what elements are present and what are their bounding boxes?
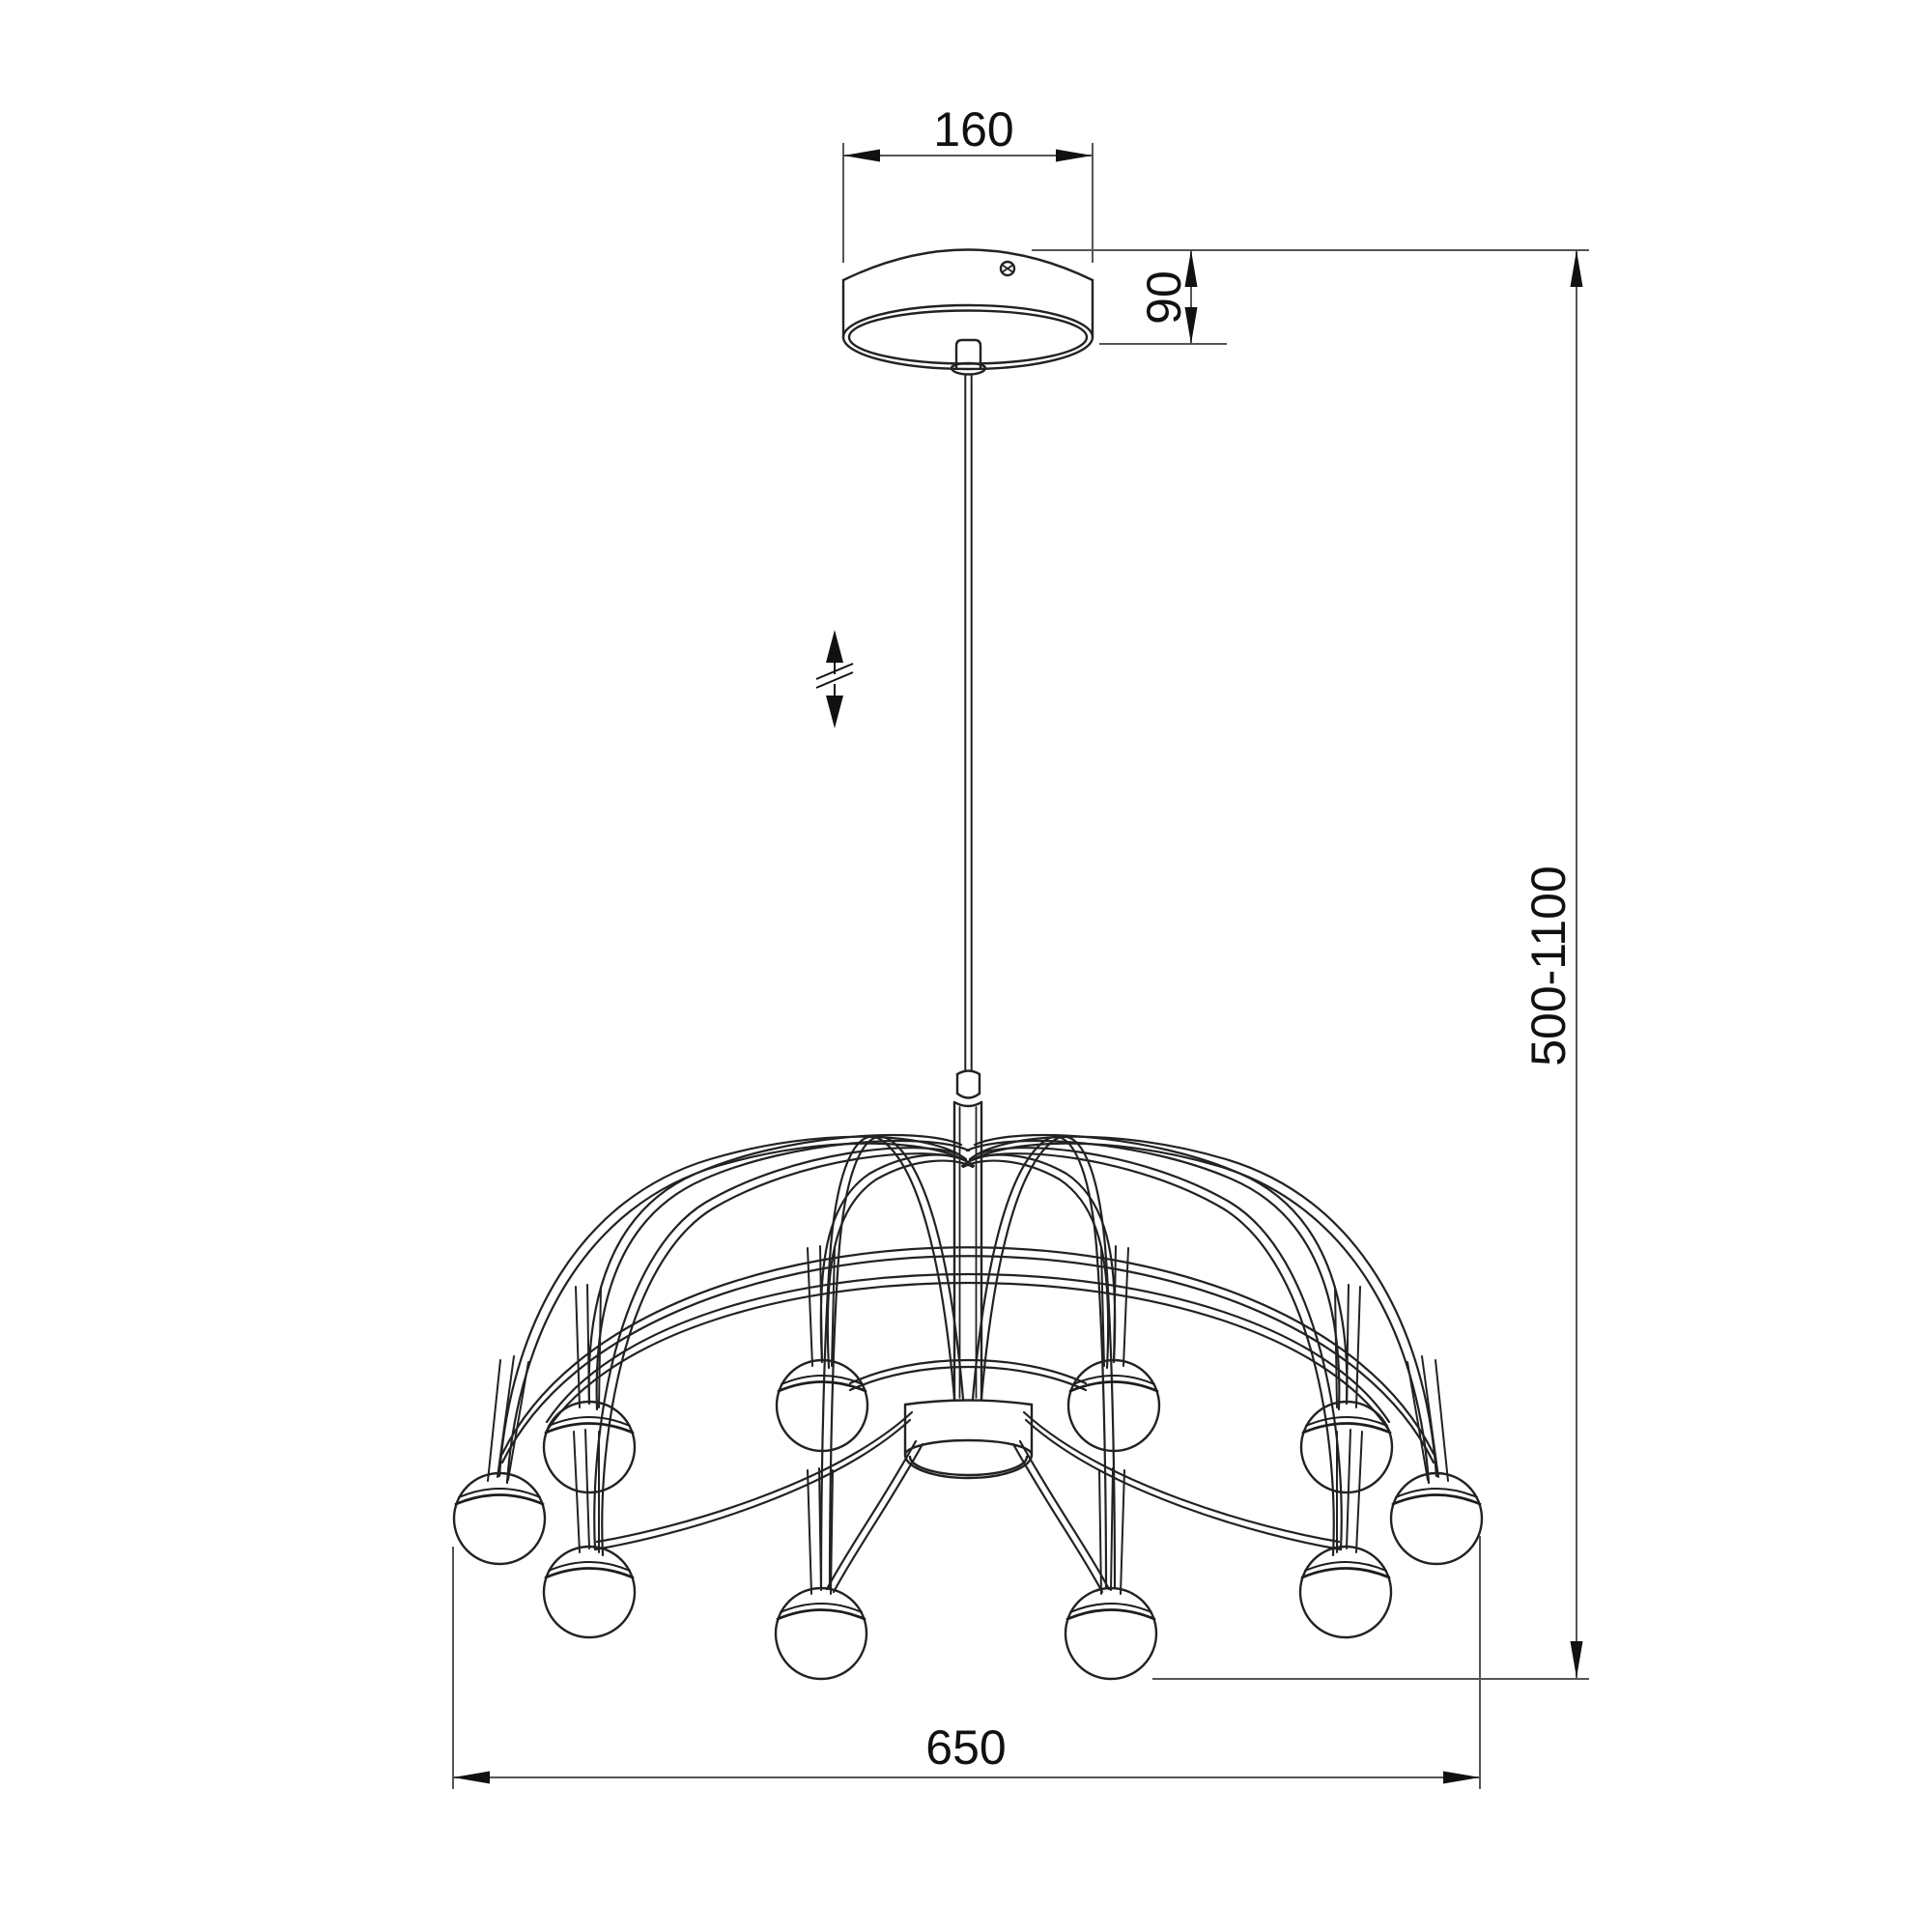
sphere-cap-line — [456, 1495, 543, 1505]
lamp-sphere — [1391, 1473, 1482, 1564]
sphere-cap-line — [546, 1424, 633, 1434]
canopy-top-rim — [843, 250, 1093, 281]
central-hub-drum — [905, 1401, 1032, 1479]
arm-tube — [973, 1137, 1106, 1588]
arm-tube — [1024, 1412, 1339, 1542]
stem-joint — [954, 1102, 981, 1106]
arm-tube — [978, 1148, 1342, 1549]
arrowhead-right-icon — [1056, 150, 1093, 162]
lamp-sphere — [1301, 1402, 1392, 1492]
sphere-glass — [454, 1473, 545, 1564]
stem-cap — [957, 1074, 980, 1094]
arm-tube — [827, 1441, 916, 1589]
lamp-sphere — [1065, 1588, 1156, 1679]
arrowhead-left-icon — [453, 1772, 490, 1784]
arm-tube — [597, 1412, 912, 1542]
sphere-cap-line — [778, 1610, 865, 1620]
suspension-cable — [965, 375, 971, 1070]
arm-lattice — [499, 1135, 1436, 1592]
stem-cap-top — [957, 1071, 980, 1075]
arrowhead-down-icon — [1571, 1641, 1583, 1678]
drum-top-edge — [905, 1401, 1032, 1406]
adjust-arrow-up-icon — [826, 630, 843, 663]
lamp-sphere — [544, 1402, 635, 1492]
dimension-canopy-width: 160 — [843, 102, 1093, 263]
lamp-spheres — [454, 1360, 1482, 1679]
ceiling-canopy — [843, 250, 1093, 375]
sphere-glass — [1300, 1547, 1391, 1637]
sphere-glass — [544, 1402, 635, 1492]
lamp-sphere — [454, 1473, 545, 1564]
fan-line — [1099, 1468, 1124, 1594]
height-adjustable-symbol — [816, 630, 853, 728]
arm-tube — [1020, 1441, 1109, 1589]
arrowhead-left-icon — [843, 150, 880, 162]
technical-drawing-sheet: 160 90 500-1100 650 — [0, 0, 1932, 1932]
sphere-glass — [1065, 1588, 1156, 1679]
arm-tube — [834, 1444, 923, 1592]
dimension-value-canopy-height: 90 — [1137, 270, 1191, 325]
arrowhead-up-icon — [1571, 250, 1583, 287]
sphere-cap-line — [1303, 1424, 1390, 1434]
sphere-cap-line — [1067, 1610, 1154, 1620]
adjust-arrow-down-icon — [826, 696, 843, 728]
chandelier-dimension-drawing: 160 90 500-1100 650 — [0, 0, 1932, 1932]
dimension-value-canopy-width: 160 — [933, 102, 1013, 156]
sphere-glass — [776, 1588, 867, 1679]
arrowhead-right-icon — [1443, 1772, 1480, 1784]
stem-cap-bottom — [957, 1094, 980, 1098]
dimension-fixture-diameter: 650 — [453, 1536, 1480, 1789]
lamp-sphere — [1300, 1547, 1391, 1637]
sphere-cap-line — [1302, 1569, 1389, 1578]
sphere-cap-line — [1393, 1495, 1480, 1505]
drum-bottom-far-rim — [905, 1440, 1032, 1455]
dimension-value-suspension-range: 500-1100 — [1521, 866, 1576, 1066]
sphere-glass — [544, 1547, 635, 1637]
sphere-cap-line — [546, 1569, 633, 1578]
dimension-value-fixture-diameter: 650 — [925, 1720, 1006, 1775]
arm-tube — [594, 1148, 958, 1549]
dimension-canopy-height: 90 — [1032, 250, 1589, 344]
sphere-glass — [1301, 1402, 1392, 1492]
canopy-bottom-rim-inner — [849, 311, 1087, 364]
arm-tube — [1013, 1444, 1102, 1592]
arm-tube — [850, 1360, 1086, 1383]
arm-tube — [830, 1137, 963, 1588]
lamp-sphere — [776, 1588, 867, 1679]
screw-cross — [1002, 265, 1013, 272]
lamp-sphere — [544, 1547, 635, 1637]
canopy-bottom-rim-outer — [843, 305, 1093, 369]
sphere-glass — [1391, 1473, 1482, 1564]
dimension-suspension-range: 500-1100 — [1152, 250, 1589, 1679]
